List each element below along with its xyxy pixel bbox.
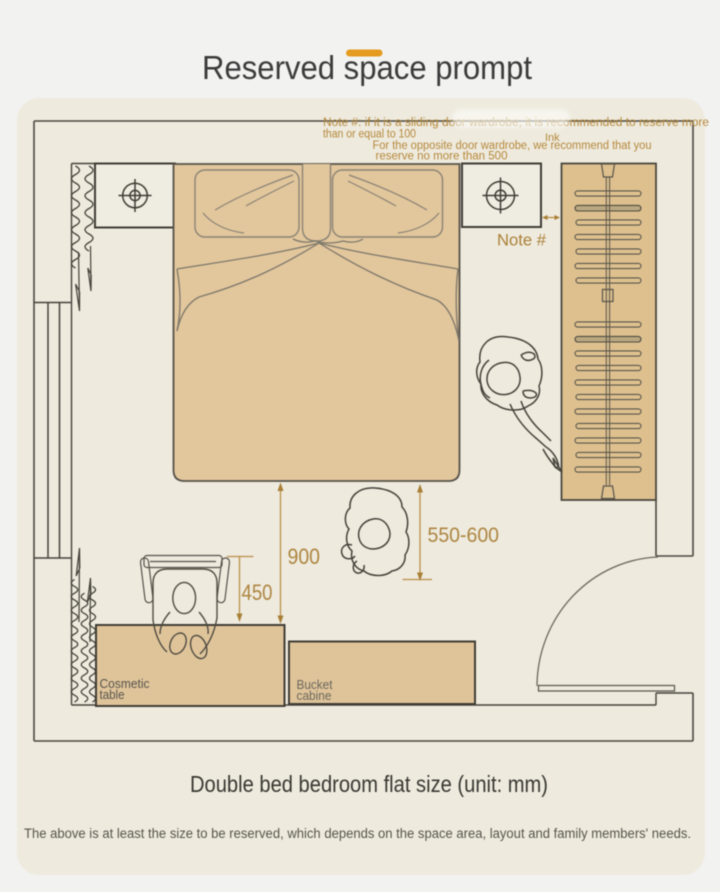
svg-text:Note #: Note # [497, 231, 547, 250]
svg-text:Ink: Ink [545, 132, 560, 144]
svg-text:than or equal to 100: than or equal to 100 [323, 129, 416, 141]
svg-text:reserve no more than 500: reserve no more than 500 [376, 151, 508, 163]
svg-text:900: 900 [288, 544, 321, 569]
svg-text:450: 450 [242, 580, 273, 605]
svg-text:The above is at least the size: The above is at least the size to be res… [24, 826, 691, 841]
svg-text:cabine: cabine [297, 688, 332, 703]
svg-text:550-600: 550-600 [428, 524, 500, 547]
svg-text:Double bed bedroom flat size (: Double bed bedroom flat size (unit: mm) [190, 771, 548, 797]
svg-text:table: table [100, 687, 125, 702]
